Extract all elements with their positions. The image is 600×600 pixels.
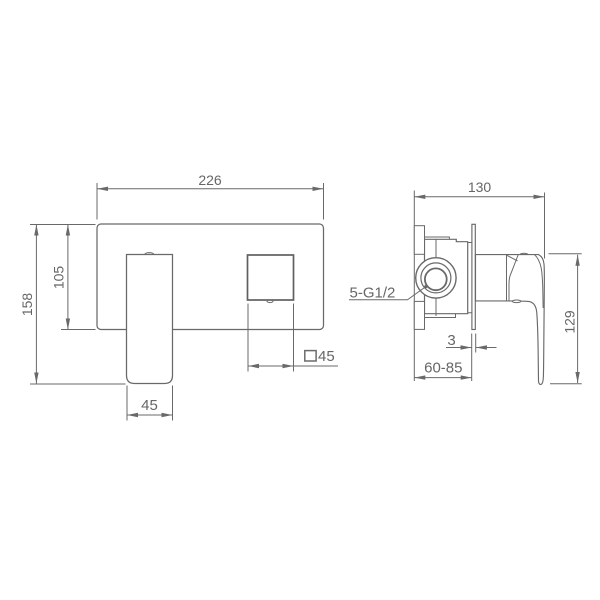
svg-text:5-G1/2: 5-G1/2: [350, 285, 396, 302]
svg-text:158: 158: [19, 293, 35, 317]
svg-text:105: 105: [51, 266, 67, 290]
svg-text:129: 129: [562, 310, 578, 334]
svg-text:3: 3: [447, 332, 455, 349]
svg-text:45: 45: [141, 397, 158, 414]
svg-text:130: 130: [468, 179, 492, 195]
svg-text:60-85: 60-85: [424, 360, 462, 377]
svg-text:226: 226: [198, 172, 222, 188]
svg-text:45: 45: [318, 348, 335, 365]
